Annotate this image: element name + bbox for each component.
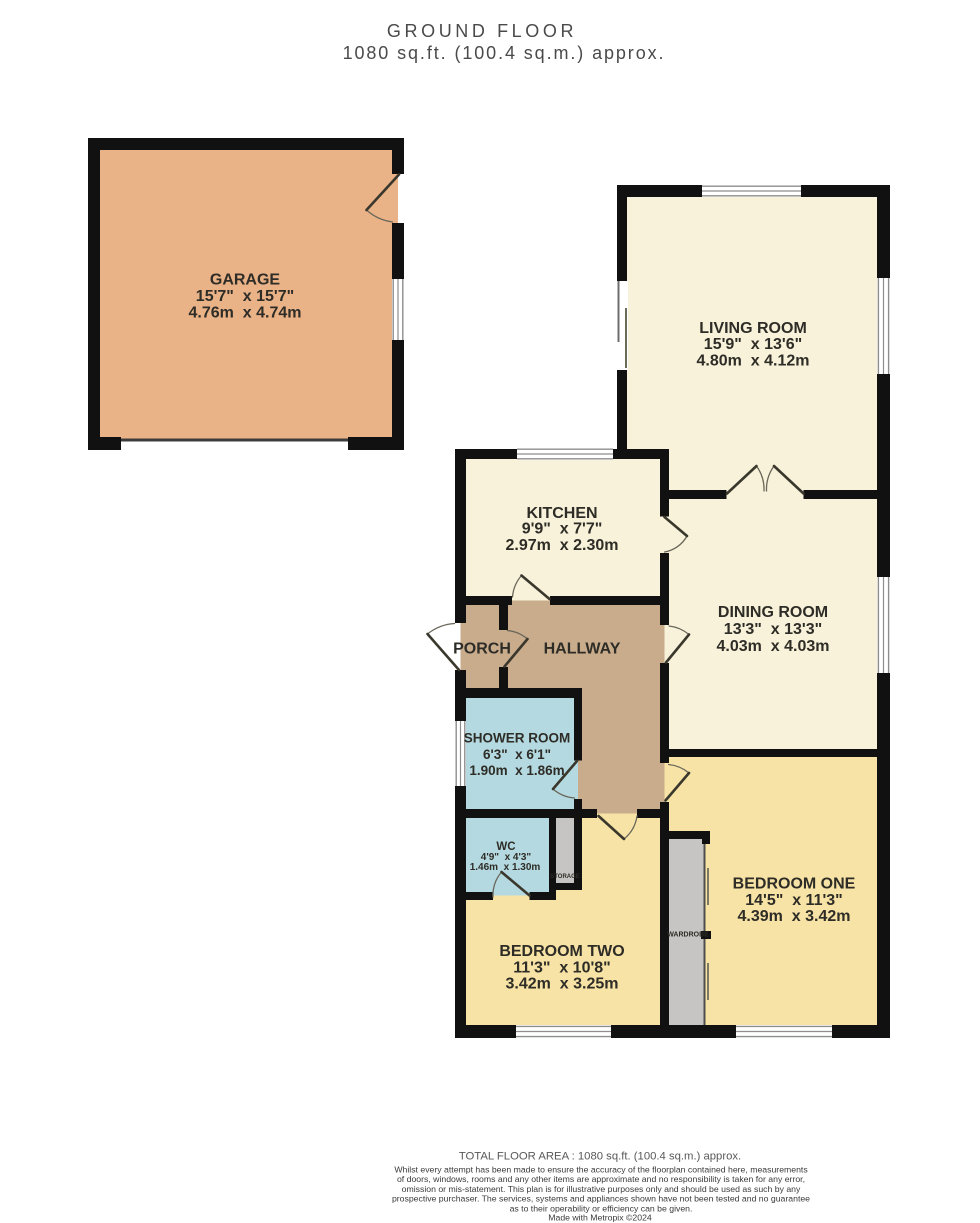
svg-text:WARDROBE: WARDROBE [667, 932, 709, 939]
svg-text:11'3" x 10'8": 11'3" x 10'8" [513, 960, 611, 977]
svg-text:Whilst every attempt has been: Whilst every attempt has been made to en… [394, 1165, 808, 1175]
svg-text:prospective purchaser. The ser: prospective purchaser. The services, sys… [392, 1194, 810, 1204]
svg-text:4.80m x 4.12m: 4.80m x 4.12m [697, 353, 810, 370]
svg-text:LIVING ROOM: LIVING ROOM [699, 320, 807, 337]
svg-text:STORAGE: STORAGE [550, 874, 580, 880]
svg-text:6'3" x 6'1": 6'3" x 6'1" [483, 747, 551, 762]
svg-text:3.42m x 3.25m: 3.42m x 3.25m [506, 976, 619, 993]
svg-text:GARAGE: GARAGE [210, 272, 281, 289]
svg-text:4.76m x 4.74m: 4.76m x 4.74m [189, 305, 302, 322]
svg-text:14'5" x 11'3": 14'5" x 11'3" [745, 892, 843, 909]
svg-text:KITCHEN: KITCHEN [526, 505, 597, 522]
svg-text:15'7" x 15'7": 15'7" x 15'7" [196, 288, 294, 305]
svg-text:1080 sq.ft. (100.4 sq.m.) appr: 1080 sq.ft. (100.4 sq.m.) approx. [343, 43, 666, 63]
svg-text:BEDROOM ONE: BEDROOM ONE [733, 876, 856, 893]
svg-text:2.97m x 2.30m: 2.97m x 2.30m [506, 537, 619, 554]
svg-text:4.39m x 3.42m: 4.39m x 3.42m [738, 908, 851, 925]
svg-text:BEDROOM TWO: BEDROOM TWO [499, 943, 624, 960]
svg-text:13'3" x 13'3": 13'3" x 13'3" [724, 621, 822, 638]
svg-text:4.03m x 4.03m: 4.03m x 4.03m [717, 638, 830, 655]
svg-text:of doors, windows, rooms and a: of doors, windows, rooms and any other i… [397, 1174, 805, 1184]
svg-text:1.90m x 1.86m: 1.90m x 1.86m [469, 763, 564, 778]
svg-text:GROUND FLOOR: GROUND FLOOR [387, 21, 577, 41]
svg-text:DINING ROOM: DINING ROOM [718, 604, 828, 621]
svg-text:omission or mis-statement. Thi: omission or mis-statement. This plan is … [402, 1184, 801, 1194]
svg-text:Made with Metropix ©2024: Made with Metropix ©2024 [548, 1213, 652, 1223]
svg-text:1.46m x 1.30m: 1.46m x 1.30m [470, 862, 541, 873]
svg-text:HALLWAY: HALLWAY [544, 641, 621, 658]
svg-text:PORCH: PORCH [453, 641, 511, 658]
svg-text:9'9" x 7'7": 9'9" x 7'7" [522, 521, 603, 538]
svg-text:15'9" x 13'6": 15'9" x 13'6" [704, 336, 802, 353]
svg-text:SHOWER ROOM: SHOWER ROOM [464, 731, 571, 746]
svg-text:TOTAL FLOOR AREA : 1080 sq.ft.: TOTAL FLOOR AREA : 1080 sq.ft. (100.4 sq… [459, 1151, 741, 1163]
